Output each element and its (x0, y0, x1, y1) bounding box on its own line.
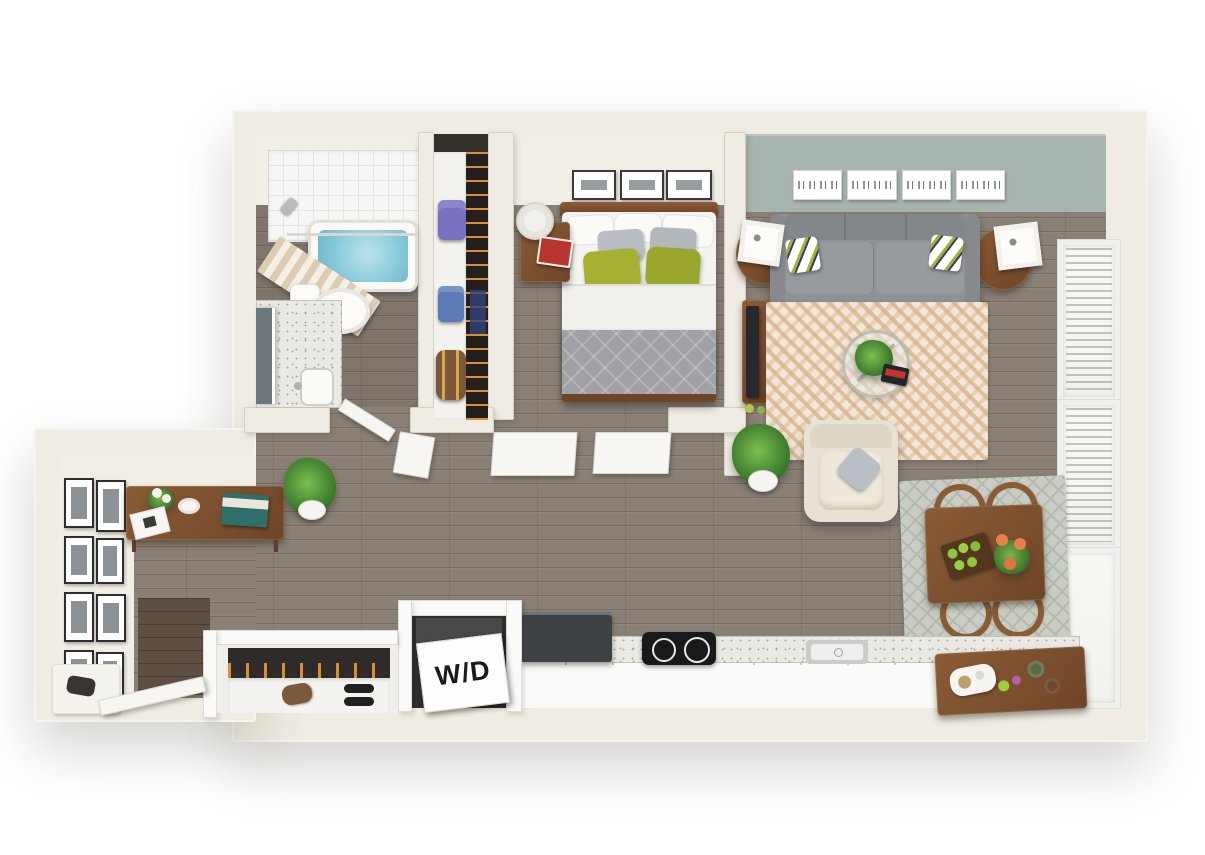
cooktop (642, 632, 716, 665)
skyline-art-panel (902, 170, 951, 200)
coat-rack (228, 648, 390, 678)
coffee-table-glass (842, 330, 910, 398)
console-dish (178, 498, 200, 514)
lamp-bulb (1009, 238, 1017, 246)
cube-lamp-left (737, 219, 784, 266)
green-apple (957, 542, 970, 555)
skyline-art-panel (847, 170, 896, 200)
window-pane-1 (1058, 240, 1120, 402)
skyline-art-set (793, 170, 1005, 200)
orange-flower (1004, 558, 1016, 570)
green-apple (946, 547, 959, 560)
bathroom-closet-wall (418, 132, 434, 420)
entry-plant-pot (298, 500, 326, 520)
entry-closet-wall-left (203, 630, 217, 718)
wd-closet-wall-top (398, 600, 522, 616)
shower-curtain-rod (287, 233, 418, 236)
coffee-table-book (880, 363, 909, 386)
bed-foot-rail (562, 394, 716, 402)
sofa-arm-right (965, 214, 980, 310)
vanity-mirror (256, 308, 275, 404)
bedroom-art-frame-1 (572, 170, 616, 200)
gallery-frame (96, 480, 126, 532)
boots (66, 675, 97, 698)
window-pane-2 (1058, 400, 1120, 550)
burner (684, 637, 710, 663)
green-apple (998, 680, 1010, 692)
bedroom-sliding-door-2 (593, 432, 672, 474)
bedroom-art-frame-2 (620, 170, 664, 200)
console-book-stack (221, 492, 269, 527)
shoes (344, 697, 374, 706)
armchair (804, 420, 898, 522)
refrigerator (520, 612, 612, 662)
shaker (974, 670, 985, 681)
vanity-sink (300, 368, 334, 406)
gallery-frame (96, 594, 126, 642)
blue-bag (438, 286, 464, 322)
hanging-clothes (466, 152, 488, 420)
bedside-lamp (516, 202, 554, 240)
sofa-accent-pillow (928, 234, 964, 272)
sink-faucet-icon (294, 382, 302, 390)
duffel-bag (436, 350, 466, 400)
purple-flowers (1012, 675, 1021, 684)
hall-wall-segment-right (668, 407, 746, 433)
kitchen-sink (806, 640, 868, 664)
floor-plan-render: W/D (0, 0, 1205, 855)
green-apple (969, 540, 982, 553)
console-leg (132, 540, 136, 552)
gallery-frame (64, 478, 94, 528)
console-magazine (129, 506, 170, 540)
skyline-art-panel (956, 170, 1005, 200)
wd-closet-wall-left (398, 600, 412, 712)
entry-console-table (126, 486, 284, 540)
purple-bag (438, 200, 466, 240)
closet-door-panel (393, 431, 436, 479)
bar-white-tray (948, 662, 998, 698)
brown-jug (1044, 677, 1061, 694)
shoes (344, 684, 374, 693)
armchair-back (810, 424, 892, 448)
tv (746, 306, 759, 398)
white-flowers (152, 488, 162, 498)
living-room-plant-pot (748, 470, 778, 492)
closet-bedroom-wall (488, 132, 514, 420)
sofa (770, 214, 980, 310)
pear (957, 674, 972, 689)
cube-lamp-right (993, 221, 1042, 270)
hall-wall-segment-left (244, 407, 330, 433)
window-blinds (1066, 408, 1112, 542)
book-red-stripe (885, 368, 906, 379)
lamp-bulb (753, 234, 761, 242)
gallery-frame (64, 592, 94, 642)
console-leg (274, 540, 278, 552)
decor-vase-green (757, 406, 765, 414)
duvet-fold (562, 284, 716, 334)
orange-flower (1014, 538, 1026, 550)
white-flowers (162, 494, 171, 503)
washer-dryer-unit: W/D (416, 633, 510, 713)
orange-flower (996, 534, 1008, 546)
decor-vase-green (745, 404, 754, 413)
gray-throw-blanket (562, 330, 716, 394)
green-bowl (1027, 660, 1045, 678)
window-blinds (1066, 248, 1112, 394)
gallery-frame (96, 538, 124, 584)
washer-dryer-label: W/D (417, 634, 509, 712)
gallery-frame (64, 536, 94, 584)
sink-faucet-icon (834, 648, 843, 657)
burner (652, 638, 676, 662)
bedroom-art-frame-3 (666, 170, 712, 200)
sofa-accent-pillow (785, 236, 821, 274)
clothes-blue-garment (470, 290, 486, 334)
bedside-books (536, 236, 574, 268)
dining-flowers (992, 532, 1032, 578)
green-apple (953, 559, 966, 572)
bar-console-table (934, 646, 1087, 716)
entry-closet-wall-top (203, 630, 398, 645)
skyline-art-panel (793, 170, 842, 200)
green-apple (966, 556, 979, 569)
bedroom-sliding-door-1 (490, 432, 577, 476)
